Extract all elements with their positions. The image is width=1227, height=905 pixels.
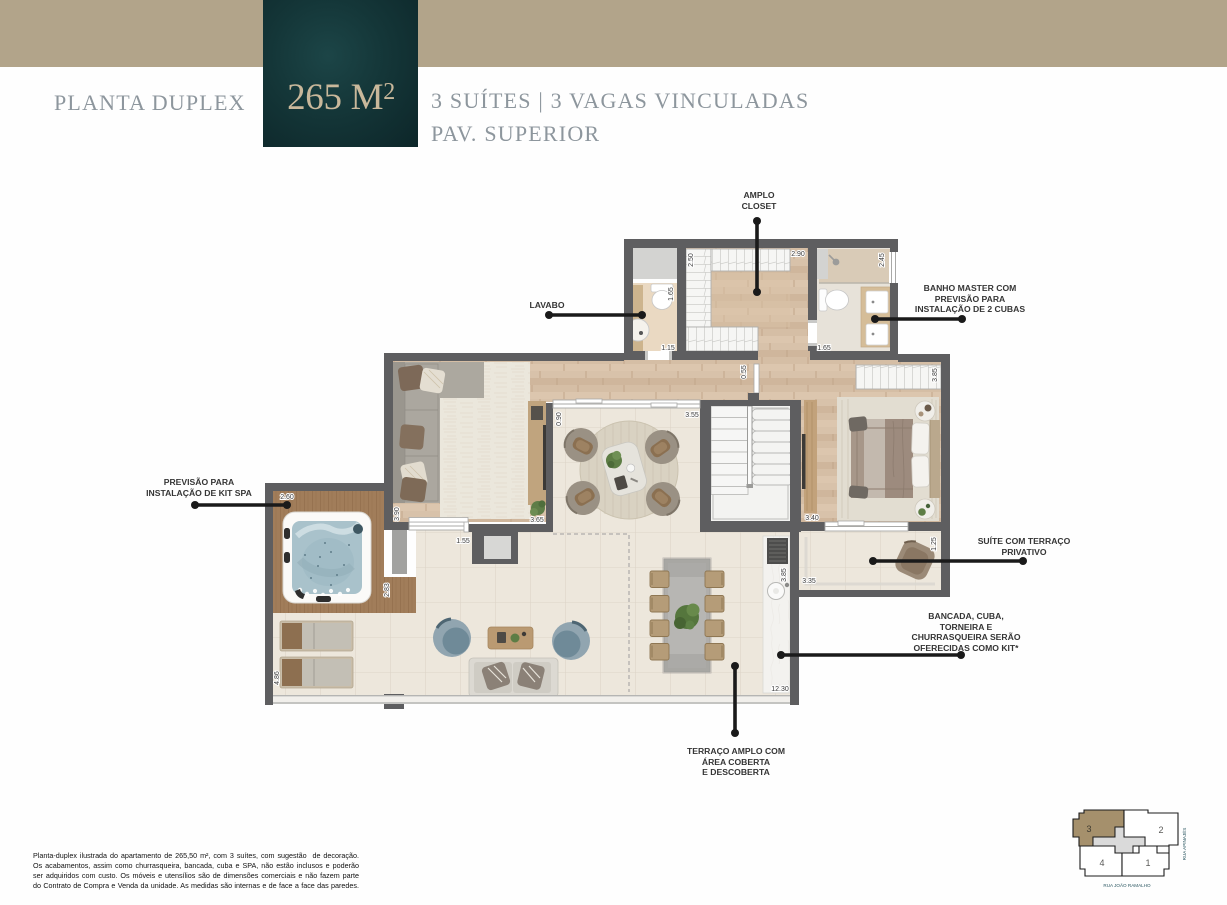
svg-text:1: 1 xyxy=(1145,858,1150,868)
svg-text:0.55: 0.55 xyxy=(741,365,748,379)
svg-text:0.90: 0.90 xyxy=(556,412,563,426)
svg-text:1.15: 1.15 xyxy=(661,345,675,352)
svg-text:2.50: 2.50 xyxy=(688,253,695,267)
svg-text:2.45: 2.45 xyxy=(879,253,886,267)
svg-text:1.65: 1.65 xyxy=(668,287,675,301)
svg-text:2: 2 xyxy=(1158,825,1163,835)
svg-text:4.86: 4.86 xyxy=(274,671,281,685)
svg-text:2.60: 2.60 xyxy=(280,494,294,501)
svg-text:3.90: 3.90 xyxy=(394,507,401,521)
svg-text:3.65: 3.65 xyxy=(530,517,544,524)
svg-text:4: 4 xyxy=(1099,858,1104,868)
svg-text:RUA JOÃO RAMALHO: RUA JOÃO RAMALHO xyxy=(1103,882,1151,888)
svg-text:1.65: 1.65 xyxy=(817,345,831,352)
svg-text:RUA APINAJÉS: RUA APINAJÉS xyxy=(1181,828,1187,861)
svg-text:1.55: 1.55 xyxy=(456,538,470,545)
svg-text:3.85: 3.85 xyxy=(932,368,939,382)
svg-text:12.30: 12.30 xyxy=(771,686,789,693)
svg-text:3.35: 3.35 xyxy=(802,578,816,585)
svg-text:2.90: 2.90 xyxy=(791,251,805,258)
svg-text:3: 3 xyxy=(1086,824,1091,834)
svg-text:3.40: 3.40 xyxy=(805,515,819,522)
svg-text:3.55: 3.55 xyxy=(685,412,699,419)
svg-text:2.83: 2.83 xyxy=(384,583,391,597)
svg-text:1.25: 1.25 xyxy=(931,537,938,551)
svg-text:3.85: 3.85 xyxy=(781,568,788,582)
